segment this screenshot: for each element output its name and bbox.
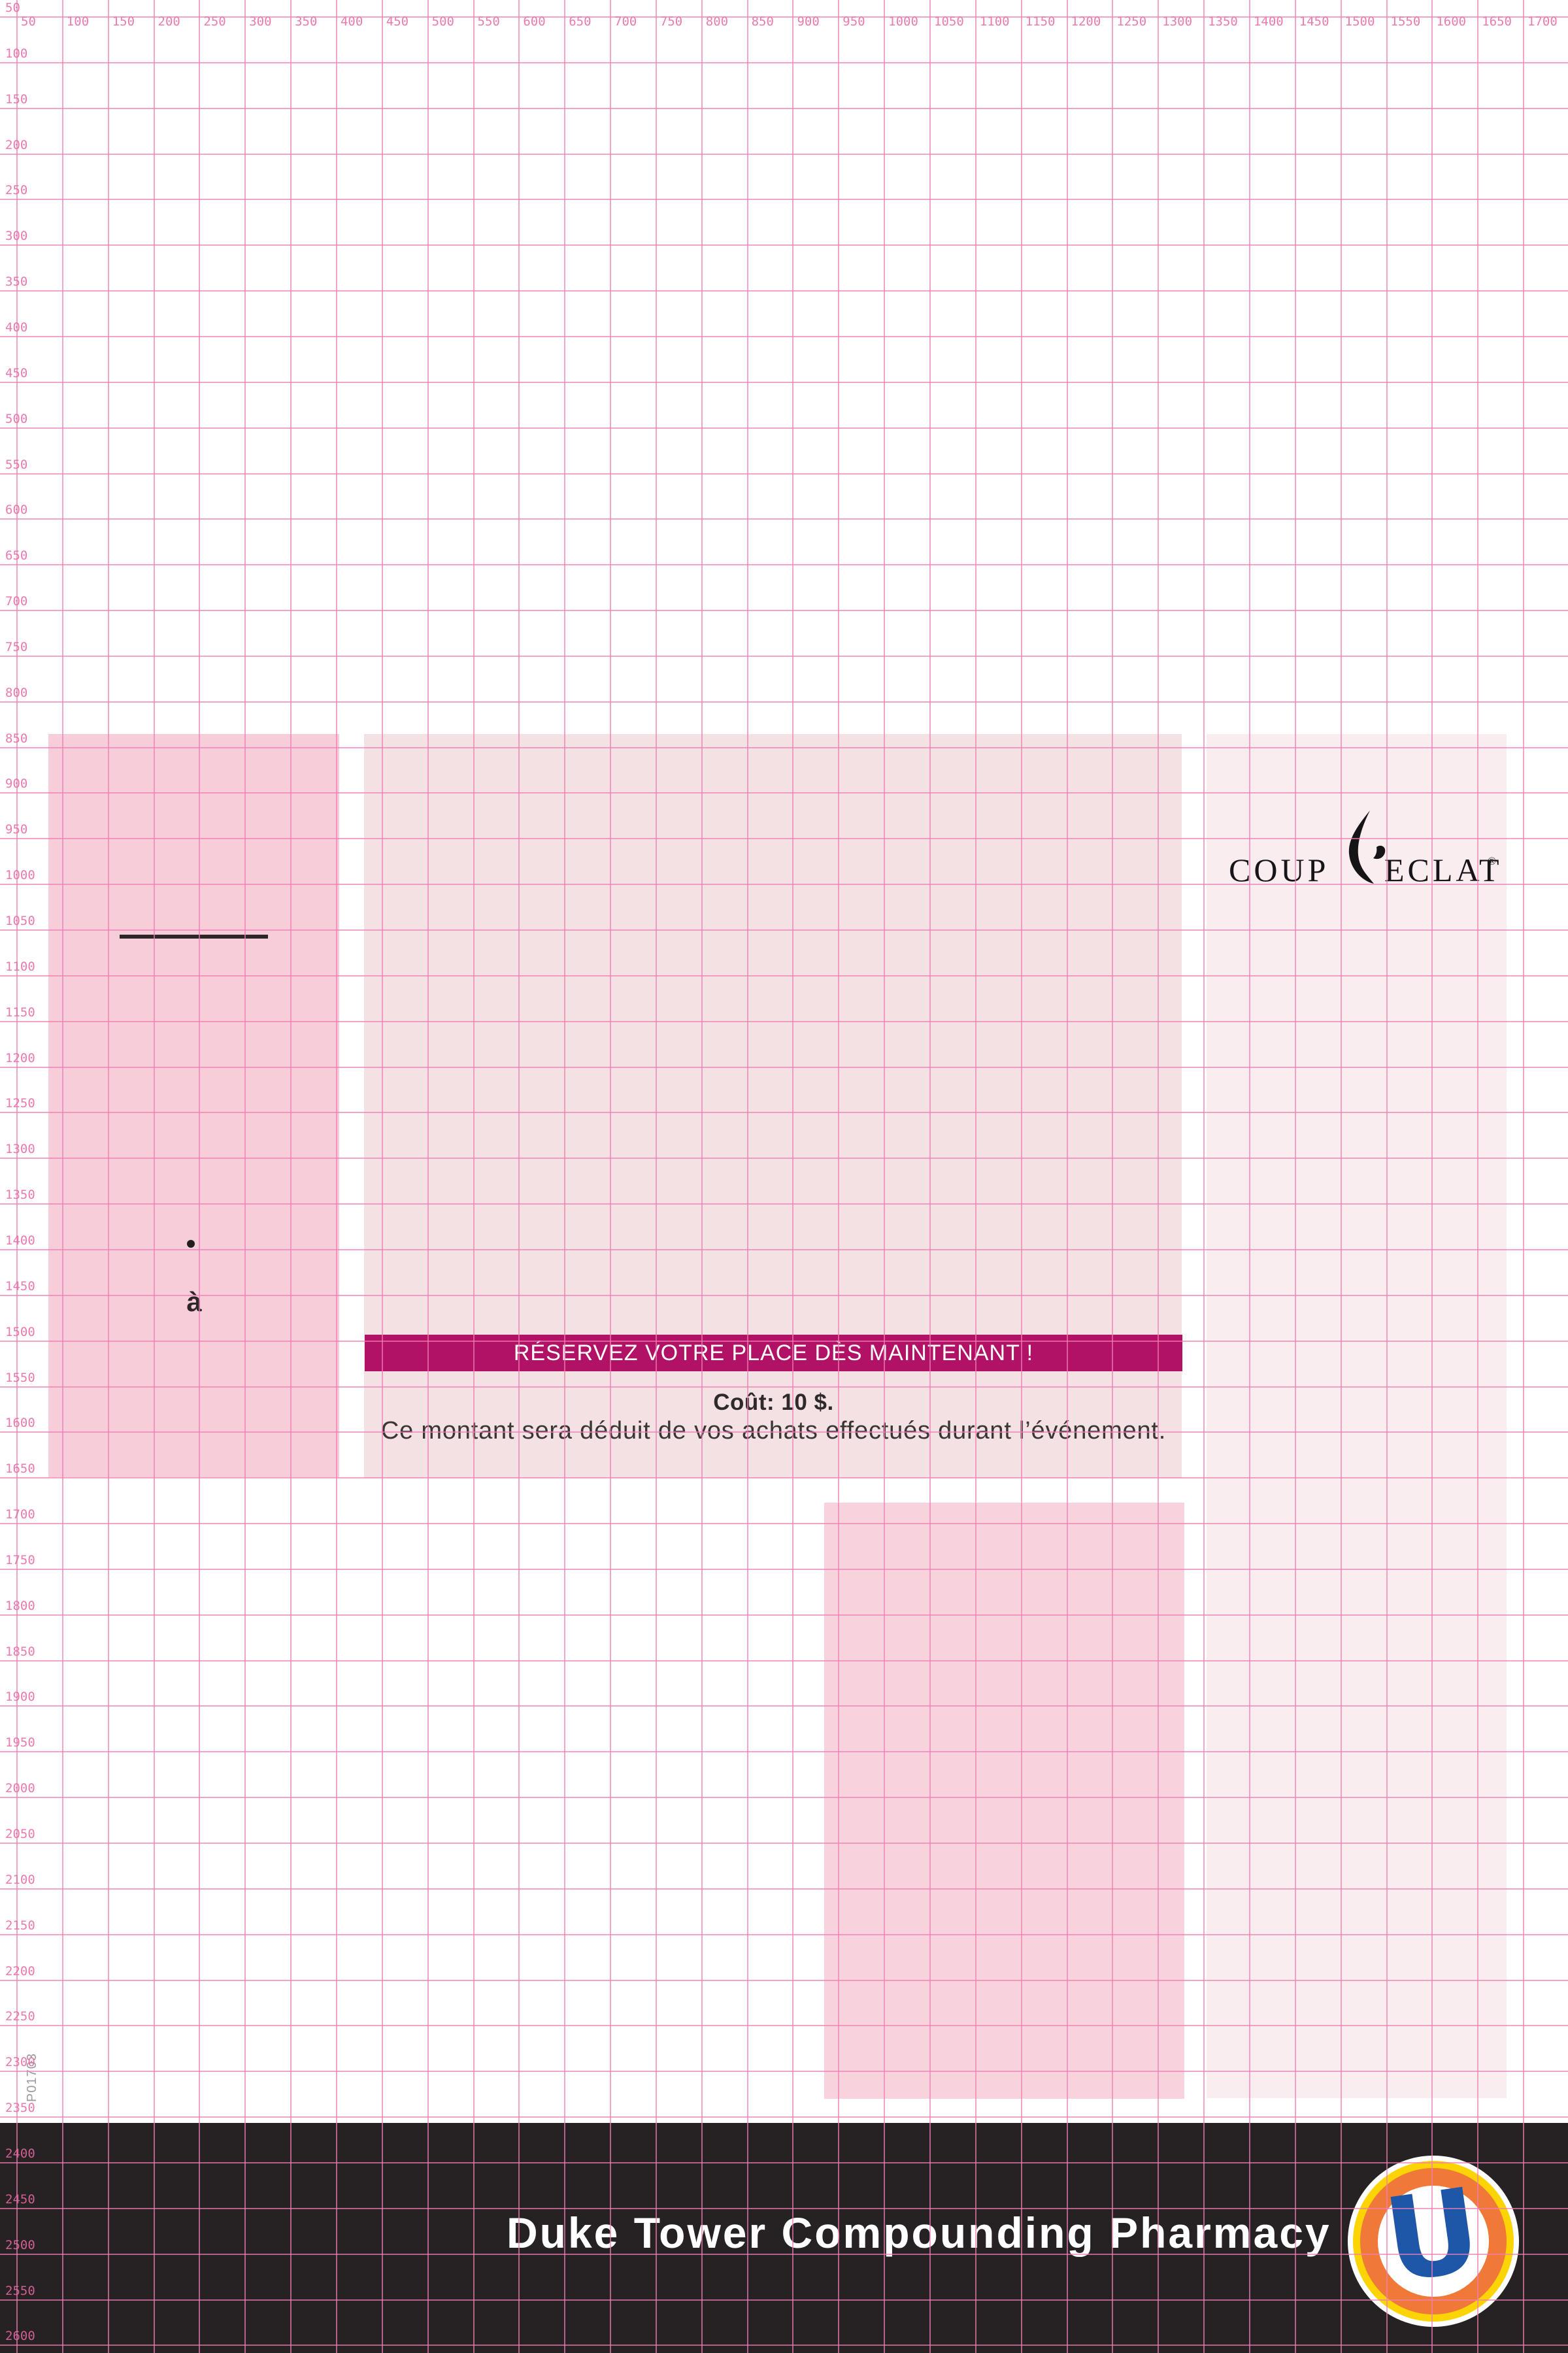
- grid-hline-750: [0, 656, 1568, 657]
- grid-vline-1700: [1523, 0, 1524, 2353]
- grid-xlabel-1050: 1050: [934, 14, 964, 29]
- grid-xlabel-350: 350: [295, 14, 317, 29]
- pink-panel-lower: [824, 1503, 1184, 2099]
- grid-xlabel-850: 850: [752, 14, 774, 29]
- grid-xlabel-1300: 1300: [1162, 14, 1192, 29]
- grid-ylabel-750: 750: [5, 640, 27, 654]
- grid-xlabel-1500: 1500: [1345, 14, 1375, 29]
- brand-word-coup: COUP: [1229, 851, 1329, 889]
- grid-ylabel-1550: 1550: [5, 1371, 35, 1385]
- grid-ylabel-1750: 1750: [5, 1553, 35, 1567]
- grid-ylabel-2150: 2150: [5, 1918, 35, 1933]
- grid-xlabel-1700: 1700: [1527, 14, 1558, 29]
- grid-ylabel-850: 850: [5, 731, 27, 746]
- proof-code: P01703: [25, 2060, 40, 2102]
- grid-hline-550: [0, 473, 1568, 475]
- pink-panel-right: [1207, 734, 1507, 2098]
- grid-ylabel-500: 500: [5, 412, 27, 426]
- grid-xlabel-950: 950: [842, 14, 865, 29]
- grid-ylabel-2100: 2100: [5, 1873, 35, 1887]
- grid-xlabel-1150: 1150: [1026, 14, 1056, 29]
- grid-ylabel-1600: 1600: [5, 1416, 35, 1430]
- reservation-banner: RÉSERVEZ VOTRE PLACE DÈS MAINTENANT !: [365, 1335, 1182, 1371]
- grid-hline-250: [0, 199, 1568, 200]
- grid-xlabel-800: 800: [706, 14, 728, 29]
- grid-xlabel-1600: 1600: [1436, 14, 1466, 29]
- grid-vline-50: [16, 0, 18, 2353]
- grid-ylabel-2050: 2050: [5, 1827, 35, 1841]
- grid-xlabel-500: 500: [432, 14, 454, 29]
- grid-ylabel-100: 100: [5, 46, 27, 61]
- grid-ylabel-150: 150: [5, 92, 27, 107]
- grid-ylabel-1900: 1900: [5, 1690, 35, 1704]
- grid-ylabel-1650: 1650: [5, 1461, 35, 1476]
- grid-xlabel-750: 750: [660, 14, 682, 29]
- grid-xlabel-1400: 1400: [1254, 14, 1284, 29]
- grid-ylabel-1950: 1950: [5, 1735, 35, 1750]
- grid-ylabel-1250: 1250: [5, 1096, 35, 1110]
- grid-xlabel-1000: 1000: [888, 14, 918, 29]
- grid-ylabel-1800: 1800: [5, 1599, 35, 1613]
- grid-ylabel-650: 650: [5, 548, 27, 563]
- grid-hline-50: [0, 16, 1568, 18]
- grid-hline-200: [0, 154, 1568, 155]
- grid-hline-600: [0, 518, 1568, 520]
- logo-letter-u: U: [1337, 2144, 1530, 2338]
- grid-hline-500: [0, 427, 1568, 429]
- bullet-mark: •: [187, 1240, 195, 1248]
- grid-xlabel-150: 150: [112, 14, 135, 29]
- grid-ylabel-400: 400: [5, 320, 27, 335]
- grid-xlabel-50: 50: [21, 14, 36, 29]
- grid-ylabel-2250: 2250: [5, 2009, 35, 2024]
- store-name: Duke Tower Compounding Pharmacy: [507, 2208, 1331, 2258]
- grid-xlabel-100: 100: [67, 14, 89, 29]
- grid-ylabel-1150: 1150: [5, 1005, 35, 1020]
- grid-xlabel-450: 450: [386, 14, 409, 29]
- cost-note-line: Ce montant sera déduit de vos achats eff…: [267, 1417, 1280, 1445]
- grid-hline-100: [0, 62, 1568, 63]
- grid-hline-2350: [0, 2116, 1568, 2118]
- grid-xlabel-650: 650: [569, 14, 591, 29]
- grid-ylabel-1850: 1850: [5, 1644, 35, 1659]
- uniprix-logo-icon: U: [1348, 2156, 1519, 2327]
- grid-ylabel-800: 800: [5, 686, 27, 700]
- stray-letter-a: à: [168, 1286, 220, 1318]
- grid-ylabel-1200: 1200: [5, 1051, 35, 1065]
- grid-ylabel-300: 300: [5, 229, 27, 243]
- grid-vline-1350: [1203, 0, 1205, 2353]
- grid-xlabel-550: 550: [478, 14, 500, 29]
- grid-hline-150: [0, 108, 1568, 109]
- grid-xlabel-1100: 1100: [980, 14, 1010, 29]
- grid-hline-700: [0, 610, 1568, 611]
- grid-ylabel-2350: 2350: [5, 2101, 35, 2115]
- grid-xlabel-1350: 1350: [1208, 14, 1238, 29]
- grid-ylabel-2000: 2000: [5, 1781, 35, 1795]
- grid-ylabel-2200: 2200: [5, 1964, 35, 1978]
- grid-ylabel-250: 250: [5, 183, 27, 197]
- print-proof-page: • à COUP ECLAT ® RÉSERVEZ VOTRE PLACE DÈ…: [0, 0, 1568, 2353]
- grid-ylabel-1300: 1300: [5, 1142, 35, 1156]
- cost-line: Coût: 10 $.: [365, 1390, 1182, 1416]
- pink-panel-left: [48, 734, 339, 1477]
- grid-ylabel-1350: 1350: [5, 1188, 35, 1202]
- brand-word-eclat: ECLAT: [1384, 851, 1503, 889]
- grid-hline-350: [0, 290, 1568, 292]
- grid-xlabel-1550: 1550: [1391, 14, 1421, 29]
- grid-xlabel-200: 200: [158, 14, 180, 29]
- grid-ylabel-1450: 1450: [5, 1279, 35, 1293]
- grid-ylabel-350: 350: [5, 275, 27, 289]
- brand-swoosh-icon: [1340, 809, 1387, 885]
- grid-ylabel-1050: 1050: [5, 914, 35, 928]
- grid-ylabel-50: 50: [5, 1, 20, 15]
- grid-hline-400: [0, 336, 1568, 337]
- grid-ylabel-950: 950: [5, 822, 27, 837]
- grid-xlabel-1200: 1200: [1071, 14, 1101, 29]
- grid-xlabel-1250: 1250: [1116, 14, 1146, 29]
- grid-ylabel-1500: 1500: [5, 1325, 35, 1339]
- grid-hline-800: [0, 701, 1568, 703]
- grid-xlabel-1650: 1650: [1482, 14, 1512, 29]
- grid-ylabel-550: 550: [5, 458, 27, 472]
- grid-ylabel-600: 600: [5, 503, 27, 517]
- grid-xlabel-300: 300: [249, 14, 271, 29]
- grid-ylabel-700: 700: [5, 594, 27, 609]
- grid-ylabel-1000: 1000: [5, 868, 35, 882]
- grid-ylabel-1700: 1700: [5, 1507, 35, 1522]
- grid-ylabel-1400: 1400: [5, 1233, 35, 1248]
- grid-ylabel-1100: 1100: [5, 960, 35, 974]
- grid-ylabel-200: 200: [5, 138, 27, 152]
- grid-xlabel-250: 250: [203, 14, 225, 29]
- grid-ylabel-450: 450: [5, 366, 27, 380]
- grid-xlabel-700: 700: [614, 14, 637, 29]
- grid-hline-650: [0, 564, 1568, 565]
- grid-hline-450: [0, 382, 1568, 383]
- reservation-banner-text: RÉSERVEZ VOTRE PLACE DÈS MAINTENANT !: [514, 1341, 1033, 1366]
- grid-ylabel-900: 900: [5, 776, 27, 791]
- grid-xlabel-1450: 1450: [1299, 14, 1329, 29]
- grid-xlabel-900: 900: [797, 14, 819, 29]
- grid-xlabel-600: 600: [523, 14, 545, 29]
- registered-mark-icon: ®: [1488, 855, 1496, 868]
- grid-hline-300: [0, 244, 1568, 246]
- grid-xlabel-400: 400: [341, 14, 363, 29]
- black-rule-mark: [120, 935, 268, 939]
